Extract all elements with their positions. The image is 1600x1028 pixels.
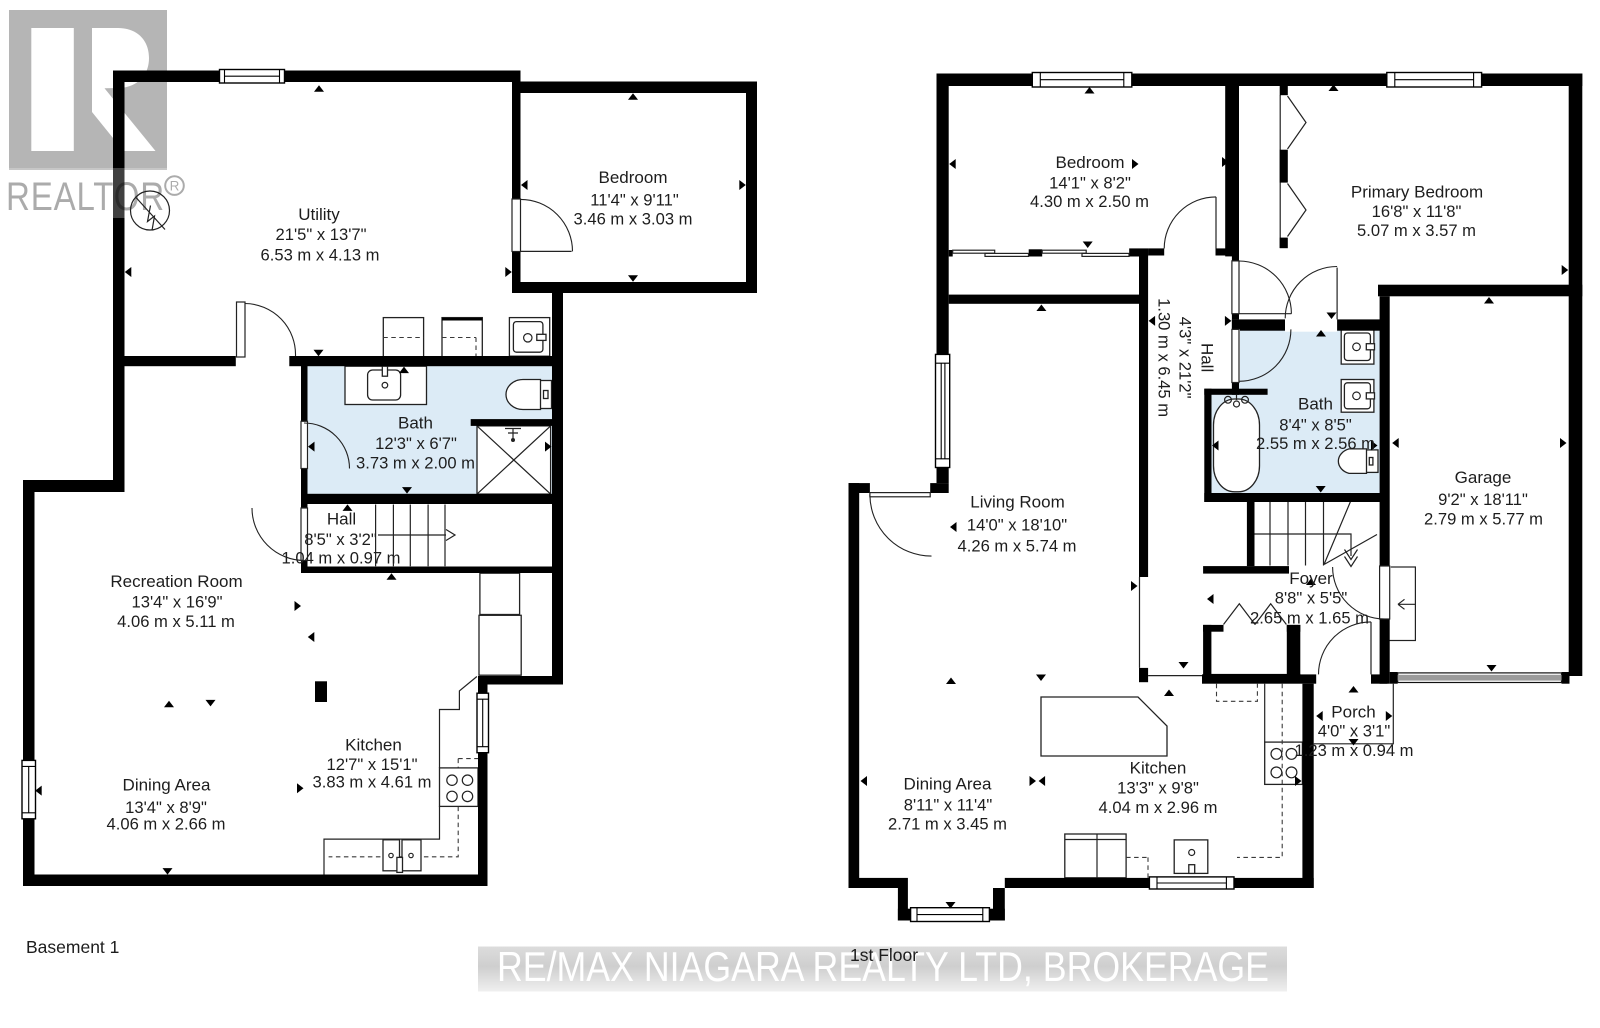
svg-text:Basement 1: Basement 1 [26,937,119,957]
svg-text:Recreation Room: Recreation Room [110,572,242,591]
svg-text:Hall: Hall [1198,343,1217,372]
svg-text:21'5" x 13'7": 21'5" x 13'7" [275,225,366,244]
svg-text:8'8" x 5'5": 8'8" x 5'5" [1275,589,1348,608]
svg-text:9'2" x 18'11": 9'2" x 18'11" [1438,490,1528,509]
svg-text:1.04 m x 0.97 m: 1.04 m x 0.97 m [282,549,401,568]
svg-text:14'0" x 18'10": 14'0" x 18'10" [967,516,1067,535]
svg-text:Kitchen: Kitchen [1130,759,1187,778]
svg-text:2.71 m x 3.45 m: 2.71 m x 3.45 m [888,815,1007,834]
svg-text:2.65 m x 1.65 m: 2.65 m x 1.65 m [1250,609,1369,628]
svg-text:Living Room: Living Room [970,493,1065,512]
svg-text:2.79 m x 5.77 m: 2.79 m x 5.77 m [1424,510,1543,529]
svg-text:12'3" x 6'7": 12'3" x 6'7" [375,434,457,453]
svg-text:R: R [170,179,180,194]
svg-text:Bath: Bath [1298,395,1333,414]
svg-text:3.46 m x 3.03 m: 3.46 m x 3.03 m [574,210,693,229]
svg-text:8'11" x 11'4": 8'11" x 11'4" [904,796,993,815]
svg-text:8'5" x 3'2": 8'5" x 3'2" [304,530,377,549]
svg-text:Bath: Bath [398,414,433,433]
svg-text:3.73 m x 2.00 m: 3.73 m x 2.00 m [356,454,475,473]
svg-text:1.30 m x 6.45 m: 1.30 m x 6.45 m [1155,298,1174,417]
svg-text:REALTOR: REALTOR [6,175,165,219]
svg-text:5.07 m x 3.57 m: 5.07 m x 3.57 m [1357,221,1476,240]
svg-text:4'3" x 21'2": 4'3" x 21'2" [1176,317,1195,399]
svg-text:4.26 m x 5.74 m: 4.26 m x 5.74 m [958,537,1077,556]
svg-text:Foyer: Foyer [1289,569,1333,588]
svg-text:8'4" x 8'5": 8'4" x 8'5" [1279,416,1352,435]
svg-text:1st Floor: 1st Floor [850,945,918,965]
svg-text:2.55 m x 2.56 m: 2.55 m x 2.56 m [1256,434,1375,453]
svg-text:4.06 m x 2.66 m: 4.06 m x 2.66 m [107,815,226,834]
svg-text:Garage: Garage [1455,468,1512,487]
svg-text:Kitchen: Kitchen [345,736,402,755]
svg-text:Porch: Porch [1331,703,1375,722]
svg-text:1.23 m x 0.94 m: 1.23 m x 0.94 m [1295,741,1414,760]
svg-text:Bedroom: Bedroom [599,168,668,187]
svg-text:11'4" x 9'11": 11'4" x 9'11" [590,191,679,210]
svg-text:4.06 m x 5.11 m: 4.06 m x 5.11 m [117,612,235,631]
svg-text:4.04 m x 2.96 m: 4.04 m x 2.96 m [1099,798,1218,817]
svg-text:6.53 m x 4.13 m: 6.53 m x 4.13 m [261,246,380,265]
svg-text:14'1" x 8'2": 14'1" x 8'2" [1049,174,1131,193]
svg-text:4'0" x 3'1": 4'0" x 3'1" [1318,722,1391,741]
svg-text:4.30 m x 2.50 m: 4.30 m x 2.50 m [1030,192,1149,211]
svg-text:3.83 m x 4.61 m: 3.83 m x 4.61 m [313,773,432,792]
svg-text:Primary Bedroom: Primary Bedroom [1351,183,1483,202]
svg-text:Hall: Hall [327,510,356,529]
svg-text:Dining Area: Dining Area [904,775,992,794]
svg-text:12'7" x 15'1": 12'7" x 15'1" [326,755,417,774]
svg-text:Bedroom: Bedroom [1056,153,1125,172]
svg-text:13'4" x 16'9": 13'4" x 16'9" [131,593,222,612]
svg-text:Dining Area: Dining Area [123,776,211,795]
svg-text:13'3" x 9'8": 13'3" x 9'8" [1117,779,1199,798]
svg-text:16'8" x 11'8": 16'8" x 11'8" [1372,202,1462,221]
svg-text:Utility: Utility [298,205,340,224]
